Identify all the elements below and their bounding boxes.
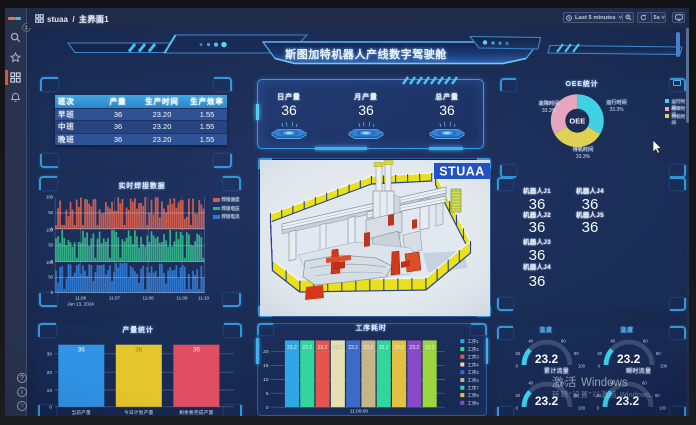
svg-text:100: 100 [659, 406, 666, 411]
svg-text:40: 40 [528, 339, 533, 344]
svg-text:80: 80 [574, 351, 579, 356]
svg-text:0: 0 [597, 364, 600, 369]
svg-text:23.2: 23.2 [318, 345, 328, 351]
svg-text:100: 100 [46, 227, 54, 232]
svg-text:工序4: 工序4 [467, 362, 479, 369]
svg-text:0: 0 [596, 406, 599, 411]
svg-text:23.2: 23.2 [364, 345, 374, 351]
svg-text:工序7: 工序7 [467, 385, 479, 392]
svg-text:工序1: 工序1 [467, 338, 479, 345]
svg-text:10: 10 [47, 388, 53, 394]
svg-text:36: 36 [193, 347, 201, 354]
svg-text:5: 5 [266, 391, 269, 397]
svg-text:20: 20 [515, 351, 520, 356]
svg-text:80: 80 [656, 351, 661, 356]
svg-text:60: 60 [643, 339, 648, 344]
svg-text:剩余要完成产量: 剩余要完成产量 [179, 409, 213, 416]
svg-text:今日计划产量: 今日计划产量 [124, 409, 153, 416]
svg-text:0: 0 [51, 290, 54, 295]
svg-text:10: 10 [263, 377, 269, 383]
svg-text:23.2: 23.2 [333, 345, 343, 351]
svg-text:50: 50 [48, 243, 53, 248]
svg-text:40: 40 [528, 381, 533, 386]
svg-text:11:00:00: 11:00:00 [350, 409, 369, 415]
svg-text:0: 0 [515, 406, 518, 411]
svg-text:36: 36 [78, 347, 86, 354]
svg-text:50: 50 [48, 274, 53, 279]
svg-text:工序3: 工序3 [467, 354, 479, 361]
svg-text:23.2: 23.2 [425, 345, 435, 351]
svg-text:100: 100 [46, 195, 54, 200]
svg-text:60: 60 [642, 381, 647, 386]
svg-text:0: 0 [266, 405, 269, 411]
svg-text:100: 100 [46, 260, 54, 265]
svg-text:当前产量: 当前产量 [72, 409, 92, 416]
svg-text:23.2: 23.2 [394, 345, 404, 351]
svg-text:0: 0 [49, 405, 52, 411]
svg-text:20: 20 [515, 393, 520, 398]
svg-text:11:10: 11:10 [198, 296, 210, 301]
svg-text:11:07: 11:07 [109, 296, 121, 301]
svg-text:40: 40 [610, 339, 615, 344]
svg-text:23.2: 23.2 [348, 345, 358, 351]
svg-text:23.2: 23.2 [409, 345, 419, 351]
svg-text:11:06: 11:06 [75, 296, 87, 301]
svg-text:20: 20 [597, 351, 602, 356]
svg-text:工序2: 工序2 [467, 346, 479, 353]
svg-text:23.2: 23.2 [302, 345, 312, 351]
svg-text:工序5: 工序5 [467, 369, 479, 376]
svg-text:30: 30 [47, 352, 53, 358]
svg-text:36: 36 [135, 347, 143, 354]
svg-text:20: 20 [263, 349, 269, 355]
svg-text:11:09: 11:09 [176, 296, 188, 301]
svg-text:50: 50 [48, 210, 53, 215]
svg-text:23.2: 23.2 [287, 345, 297, 351]
svg-text:STUAA: STUAA [439, 164, 485, 178]
svg-text:60: 60 [561, 339, 566, 344]
svg-text:23.2: 23.2 [379, 345, 389, 351]
svg-text:工序8: 工序8 [467, 392, 479, 399]
svg-text:15: 15 [263, 363, 269, 369]
svg-text:Jan 13, 2024: Jan 13, 2024 [67, 302, 94, 307]
svg-text:0: 0 [515, 364, 518, 369]
svg-text:100: 100 [578, 406, 585, 411]
svg-text:工序6: 工序6 [467, 377, 479, 384]
svg-text:OEE: OEE [569, 116, 585, 125]
svg-text:20: 20 [47, 370, 53, 376]
svg-text:工序9: 工序9 [467, 400, 479, 407]
svg-text:11:08: 11:08 [143, 296, 155, 301]
